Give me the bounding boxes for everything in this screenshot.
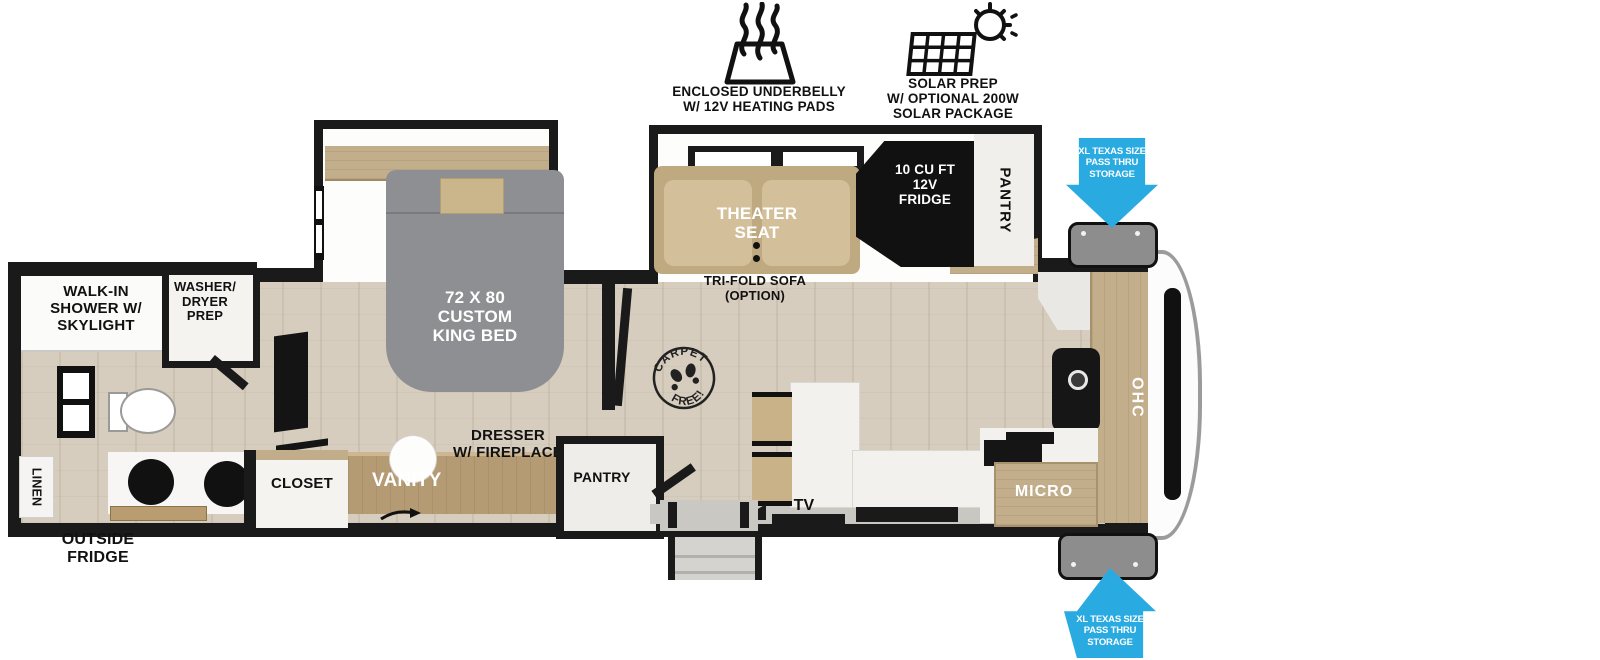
ohc-label: OHC xyxy=(1128,377,1146,419)
fridge-label: 10 CU FT 12V FRIDGE xyxy=(880,162,970,207)
bootprint-icon xyxy=(667,361,701,391)
closet-label: CLOSET xyxy=(260,476,344,493)
bed-blanket xyxy=(440,178,504,214)
kitchen-island xyxy=(790,382,860,508)
vanity-arrow-icon xyxy=(378,506,422,522)
bath-mat xyxy=(110,506,207,521)
king-bed-label: 72 X 80 CUSTOM KING BED xyxy=(396,288,554,345)
bedroom-pantry-label: PANTRY xyxy=(562,470,642,486)
bottom-window-icon xyxy=(856,507,958,522)
heating-pads-icon xyxy=(703,2,815,86)
pass-thru-arrow-rear: XL TEXAS SIZE PASS THRU STORAGE xyxy=(1064,568,1156,658)
underbelly-label: ENCLOSED UNDERBELLY W/ 12V HEATING PADS xyxy=(645,84,873,114)
pass-thru-door-top xyxy=(1068,222,1158,268)
kitchen-sink-icon xyxy=(1052,348,1100,432)
bedroom-window-left-icon xyxy=(314,186,324,260)
kitchen-pantry: PANTRY xyxy=(974,134,1034,266)
washer-dryer-label: WASHER/ DRYER PREP xyxy=(170,280,240,324)
solar-prep-icon xyxy=(900,2,1018,78)
linen-cabinet: LINEN xyxy=(19,456,54,518)
bedroom-pantry xyxy=(556,436,664,539)
theater-seat-label: THEATER SEAT xyxy=(679,204,835,242)
king-bed xyxy=(386,170,564,392)
micro-label: MICRO xyxy=(998,483,1090,501)
living-tv-icon xyxy=(772,514,845,525)
pass-thru-arrow-front: XL TEXAS SIZE PASS THRU STORAGE xyxy=(1066,138,1158,228)
solar-prep-label: SOLAR PREP W/ OPTIONAL 200W SOLAR PACKAG… xyxy=(858,76,1048,121)
outside-fridge-label: OUTSIDE FRIDGE xyxy=(42,531,154,567)
kitchen-pantry-label: PANTRY xyxy=(996,167,1013,233)
door-jamb xyxy=(668,502,677,528)
entry-step xyxy=(668,537,762,580)
bedroom-tv-icon xyxy=(274,332,308,433)
wall-bedroom-living xyxy=(602,280,615,410)
vanity-label: VANITY xyxy=(372,470,492,491)
trifold-sofa-label: TRI-FOLD SOFA (OPTION) xyxy=(690,274,820,303)
bath-vanity-sinks xyxy=(108,452,244,514)
wall-bedroom-top xyxy=(250,268,322,282)
door-jamb xyxy=(740,502,749,528)
kitchen-island-ext xyxy=(852,450,988,508)
bar-stool xyxy=(752,392,792,446)
carpet-free-stamp: CARPET FREE! xyxy=(644,338,725,419)
floorplan-canvas: ENCLOSED UNDERBELLY W/ 12V HEATING PADS … xyxy=(0,0,1600,660)
linen-label: LINEN xyxy=(30,468,44,507)
shower-label: WALK-IN SHOWER W/ SKYLIGHT xyxy=(26,284,166,334)
bathroom-window-icon xyxy=(57,366,95,438)
front-cap xyxy=(1148,250,1202,540)
tv-label: TV xyxy=(784,497,824,515)
toilet-icon xyxy=(120,388,176,434)
front-window-icon xyxy=(1164,288,1181,500)
pass-thru-label-rear: XL TEXAS SIZE PASS THRU STORAGE xyxy=(1075,614,1145,648)
pass-thru-label-front: XL TEXAS SIZE PASS THRU STORAGE xyxy=(1077,146,1147,180)
